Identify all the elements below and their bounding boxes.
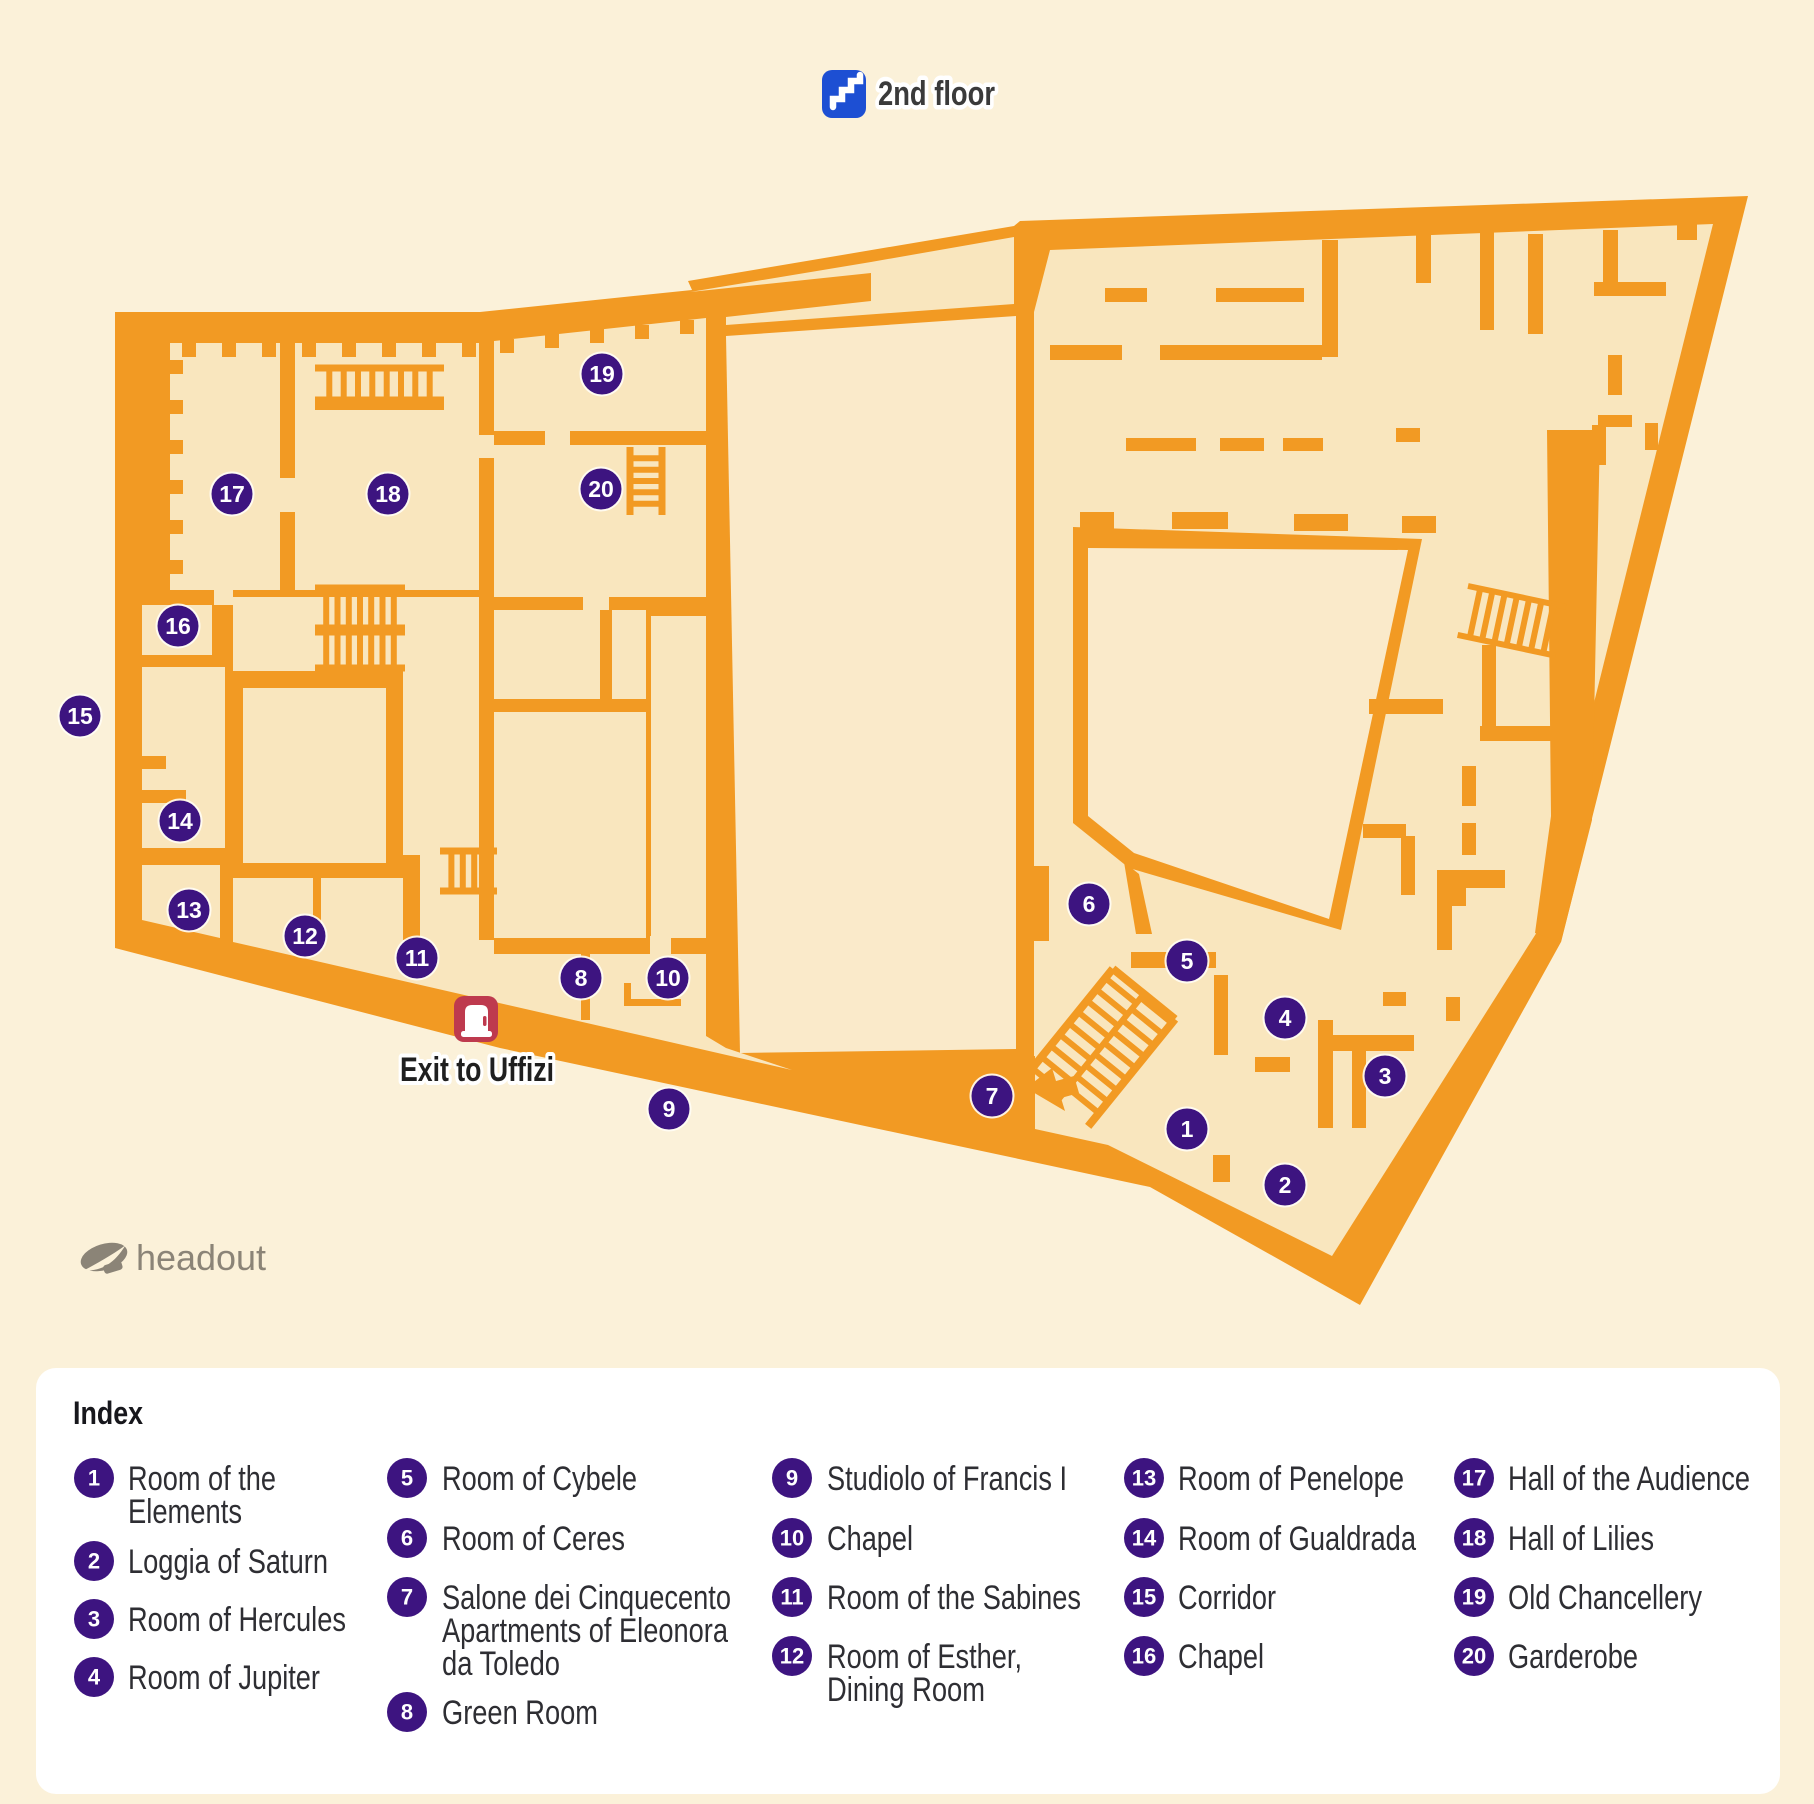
svg-text:11: 11 bbox=[405, 945, 430, 971]
svg-text:Hall of Lilies: Hall of Lilies bbox=[1508, 1520, 1654, 1558]
svg-text:9: 9 bbox=[663, 1096, 676, 1122]
svg-text:17: 17 bbox=[219, 481, 245, 507]
svg-text:Room of Penelope: Room of Penelope bbox=[1178, 1460, 1404, 1498]
svg-text:14: 14 bbox=[167, 808, 193, 834]
svg-text:Green Room: Green Room bbox=[442, 1694, 598, 1732]
svg-text:1: 1 bbox=[1181, 1116, 1194, 1142]
svg-text:1: 1 bbox=[88, 1466, 100, 1491]
svg-text:4: 4 bbox=[1279, 1005, 1292, 1031]
svg-text:headout: headout bbox=[136, 1237, 266, 1278]
svg-text:7: 7 bbox=[986, 1083, 999, 1109]
svg-text:da Toledo: da Toledo bbox=[442, 1645, 560, 1683]
svg-text:8: 8 bbox=[401, 1700, 413, 1725]
svg-text:16: 16 bbox=[1132, 1644, 1156, 1669]
svg-text:Room of Jupiter: Room of Jupiter bbox=[128, 1659, 320, 1697]
svg-text:11: 11 bbox=[780, 1585, 803, 1610]
svg-text:18: 18 bbox=[1462, 1526, 1486, 1551]
svg-text:Room of Cybele: Room of Cybele bbox=[442, 1460, 637, 1498]
svg-text:19: 19 bbox=[589, 361, 615, 387]
svg-text:6: 6 bbox=[1083, 891, 1096, 917]
svg-text:Exit to Uffizi: Exit to Uffizi bbox=[400, 1051, 554, 1089]
svg-text:14: 14 bbox=[1132, 1526, 1157, 1551]
svg-text:Dining Room: Dining Room bbox=[827, 1671, 985, 1709]
svg-text:Loggia of Saturn: Loggia of Saturn bbox=[128, 1543, 328, 1581]
svg-text:2: 2 bbox=[88, 1549, 100, 1574]
svg-text:Hall of the Audience: Hall of the Audience bbox=[1508, 1460, 1750, 1498]
svg-text:Studiolo of Francis I: Studiolo of Francis I bbox=[827, 1460, 1067, 1498]
svg-text:Old Chancellery: Old Chancellery bbox=[1508, 1579, 1702, 1617]
svg-text:16: 16 bbox=[165, 613, 191, 639]
svg-text:Room of Ceres: Room of Ceres bbox=[442, 1520, 625, 1558]
svg-text:18: 18 bbox=[375, 481, 401, 507]
svg-text:5: 5 bbox=[1181, 948, 1194, 974]
svg-text:2: 2 bbox=[1279, 1172, 1292, 1198]
svg-text:19: 19 bbox=[1462, 1585, 1486, 1610]
svg-text:5: 5 bbox=[401, 1466, 413, 1491]
svg-text:Elements: Elements bbox=[128, 1493, 242, 1531]
svg-text:9: 9 bbox=[786, 1466, 798, 1491]
svg-text:8: 8 bbox=[575, 965, 588, 991]
svg-text:Chapel: Chapel bbox=[827, 1520, 913, 1558]
svg-text:13: 13 bbox=[1132, 1466, 1156, 1491]
svg-text:Room of Gualdrada: Room of Gualdrada bbox=[1178, 1520, 1416, 1558]
svg-text:20: 20 bbox=[1462, 1644, 1486, 1669]
svg-text:10: 10 bbox=[780, 1526, 804, 1551]
svg-text:Garderobe: Garderobe bbox=[1508, 1638, 1638, 1676]
svg-text:Room of Hercules: Room of Hercules bbox=[128, 1601, 346, 1639]
svg-text:20: 20 bbox=[588, 476, 614, 502]
svg-text:Corridor: Corridor bbox=[1178, 1579, 1276, 1617]
svg-text:12: 12 bbox=[292, 923, 318, 949]
svg-text:15: 15 bbox=[1132, 1585, 1156, 1610]
svg-text:13: 13 bbox=[176, 897, 202, 923]
svg-text:Room of the Sabines: Room of the Sabines bbox=[827, 1579, 1081, 1617]
svg-text:3: 3 bbox=[88, 1607, 100, 1632]
svg-text:Index: Index bbox=[73, 1395, 143, 1431]
svg-text:15: 15 bbox=[67, 703, 93, 729]
svg-text:7: 7 bbox=[401, 1585, 413, 1610]
svg-text:17: 17 bbox=[1462, 1466, 1486, 1491]
svg-text:10: 10 bbox=[655, 965, 681, 991]
svg-text:2nd floor: 2nd floor bbox=[878, 75, 995, 113]
svg-text:Chapel: Chapel bbox=[1178, 1638, 1264, 1676]
svg-text:3: 3 bbox=[1379, 1063, 1392, 1089]
svg-text:4: 4 bbox=[88, 1665, 101, 1690]
svg-text:6: 6 bbox=[401, 1526, 413, 1551]
svg-text:12: 12 bbox=[780, 1644, 804, 1669]
